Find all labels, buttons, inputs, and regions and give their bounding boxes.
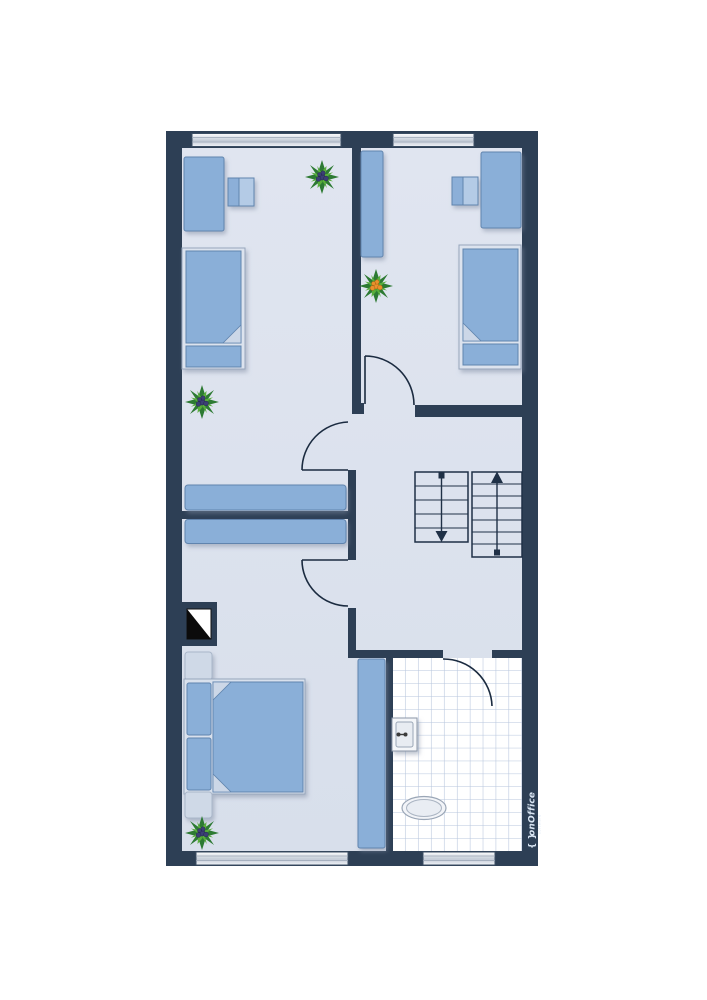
single-bed (459, 245, 521, 369)
desk-chair (452, 177, 478, 205)
sideboard (185, 485, 346, 510)
plant (359, 269, 393, 303)
wall-bathroom-top-right (492, 650, 522, 658)
plant (185, 385, 219, 419)
double-bed (184, 679, 305, 794)
window-top-right (393, 134, 474, 147)
window-top-left (192, 134, 341, 147)
sink (392, 718, 417, 751)
pillow (187, 738, 211, 790)
wall-door-jamb (352, 403, 364, 414)
wardrobe (361, 151, 383, 257)
sideboard (185, 520, 346, 544)
wall-between-left-rooms (182, 511, 348, 519)
logo-subtext: software (538, 814, 542, 834)
bathroom-tiled-floor (393, 658, 522, 851)
window-bathroom (423, 852, 495, 865)
desk (184, 157, 224, 231)
vendor-logo: { } onOffice software (528, 792, 542, 849)
toilet (402, 797, 446, 820)
wall-central (352, 148, 361, 414)
blanket (213, 682, 303, 792)
stair-start-dot (439, 473, 445, 479)
plant (185, 816, 219, 850)
logo-text: onOffice (528, 792, 538, 836)
desk-chair (228, 178, 254, 206)
nightstand-top (185, 652, 212, 680)
chimney-shaft (181, 602, 217, 646)
wall-bathroom-top-left (348, 650, 443, 658)
desk (481, 152, 521, 228)
single-bed (182, 248, 245, 369)
stair-end-dot (494, 550, 500, 556)
floor-plan-page: { } onOffice software (0, 0, 707, 1000)
floor-plan-drawing: { } onOffice software (0, 0, 707, 1000)
wall-bedroom-top-right (415, 405, 522, 417)
wardrobe-nook (358, 659, 385, 848)
wall-bathroom-left (386, 658, 393, 851)
pillow (187, 683, 211, 735)
nightstand-bottom (185, 792, 212, 818)
plant (305, 160, 339, 194)
window-bottom-left (196, 852, 348, 865)
wall-hall-left-upper (348, 470, 356, 560)
